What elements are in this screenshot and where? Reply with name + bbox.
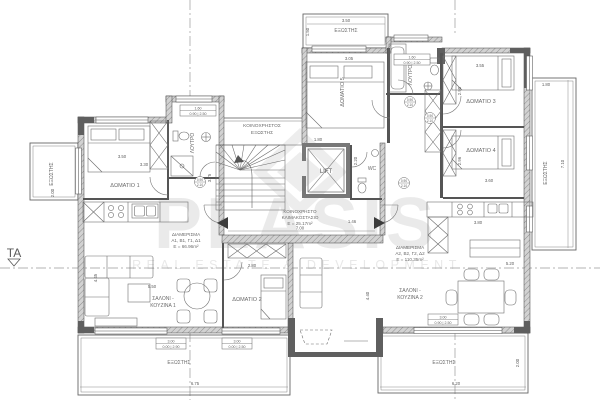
dim-living2-w: 5.20: [506, 261, 515, 266]
dim-right-w: 1.80: [542, 82, 551, 87]
dim-room4-w: 3.60: [485, 178, 494, 183]
svg-text:2.10: 2.10: [407, 103, 413, 107]
svg-text:0.90 | 2.50: 0.90 | 2.50: [435, 321, 452, 325]
dim-box-bl-1: 3.00 0.00 | 2.90: [156, 338, 186, 349]
label-room3: ΔΩΜΑΤΙΟ 3: [466, 99, 495, 105]
floor-plan-drawing: PLASIS REAL ESTATE & DEVELOPMENT TA: [0, 0, 600, 400]
svg-text:2.10: 2.10: [197, 183, 203, 187]
dim-kitchen2-w: 3.80: [474, 220, 483, 225]
svg-text:0.00 | 2.90: 0.00 | 2.90: [163, 345, 180, 349]
dim-hall-w: 7.00: [296, 226, 305, 231]
dim-room1-w: 3.50: [118, 154, 127, 159]
floor-plan-sheet: PLASIS REAL ESTATE & DEVELOPMENT TA: [0, 0, 600, 400]
section-marker: TA: [7, 246, 21, 266]
label-wc: WC: [368, 166, 377, 172]
label-bath1: ΛΟΥΤΡΟ: [190, 133, 196, 154]
section-marker-label: TA: [7, 246, 21, 260]
label-room5: ΔΩΜΑΤΙΟ 5: [340, 77, 346, 106]
svg-text:0.90: 0.90: [401, 179, 407, 183]
label-stairwell-2: ΚΛΙΜΑΚΟΣΤΑΣΙΟ: [282, 215, 319, 220]
svg-text:1.60: 1.60: [409, 56, 416, 60]
label-balcony-top: ΕΞΩΣΤΗΣ: [334, 28, 357, 34]
label-room1: ΔΩΜΑΤΙΟ 1: [110, 183, 139, 189]
label-apartment1-2: Α1, Β1, Γ1, Δ1: [171, 238, 201, 243]
svg-text:3.00: 3.00: [440, 316, 447, 320]
label-apartment1-1: ΔΙΑΜΕΡΙΣΜΑ: [172, 232, 201, 237]
label-apartment1-3: Ε = 66.96m²: [173, 244, 199, 249]
label-apartment2-2: Α2, Β2, Γ2, Δ2: [395, 251, 425, 256]
svg-text:0.90: 0.90: [407, 98, 413, 102]
dim-stair-h: 3.75: [207, 173, 212, 182]
svg-text:0.90 | 2.50: 0.90 | 2.50: [190, 112, 207, 116]
dim-room4-h: 2.96: [457, 156, 462, 165]
dim-box-bath2: 1.60 0.90 | 2.50: [394, 54, 430, 65]
lift-label: LIFT: [320, 169, 333, 175]
lightwell-planter: [300, 330, 368, 344]
svg-text:0.90 | 2.50: 0.90 | 2.50: [404, 61, 421, 65]
label-room4: ΔΩΜΑΤΙΟ 4: [466, 148, 495, 154]
dim-lift-w: 1.80: [314, 137, 323, 142]
balcony-right: [532, 78, 576, 250]
label-stairwell-1: ΚΟΙΝΟΧΡΗΣΤΟ: [283, 209, 317, 214]
dim-right-h: 7.10: [560, 159, 565, 168]
dim-br-w: 6.20: [452, 381, 461, 386]
dim-wc-h: 2.20: [353, 156, 358, 165]
bed-room3: [452, 56, 514, 90]
dim-bl-h: 2.00: [0, 0, 5, 1]
dim-box-br: 3.00 0.90 | 2.50: [428, 314, 458, 325]
svg-text:0.90: 0.90: [197, 178, 203, 182]
label-balcony-bottom-left: ΕΞΩΣΤΗΣ: [167, 360, 190, 366]
svg-text:0.90: 0.90: [427, 114, 433, 118]
label-balcony-right: ΕΞΩΣΤΗΣ: [543, 161, 549, 184]
dining-table-living1: [177, 279, 217, 323]
label-living2-2: ΚΟΥΖΙΝΑ 2: [397, 295, 423, 301]
dim-room5-w: 3.05: [345, 56, 354, 61]
label-bath2: ΛΟΥΤΡΟ: [408, 65, 414, 86]
kitchen2-counter: [427, 202, 533, 257]
label-apartment2-1: ΔΙΑΜΕΡΙΣΜΑ: [396, 245, 425, 250]
label-shared-balcony-2: ΕΞΩΣΤΗΣ: [251, 130, 273, 136]
dim-br-h: 2.00: [515, 358, 520, 367]
svg-text:2.10: 2.10: [427, 119, 433, 123]
dim-living1-w: 5.50: [148, 284, 157, 289]
label-balcony-bottom-right: ΕΞΩΣΤΗΣ: [432, 360, 455, 366]
door-tag-2: 0.90 2.10: [405, 97, 416, 108]
bathroom2-fixtures: [389, 44, 439, 92]
svg-text:3.00: 3.00: [168, 340, 175, 344]
label-living1-1: ΣΑΛΟΝΙ -: [152, 296, 174, 302]
dim-room2-w: 2.80: [248, 263, 257, 268]
dim-top-h: 1.50: [305, 27, 310, 36]
dim-living1-h: 4.45: [93, 273, 98, 282]
svg-text:3.00: 3.00: [234, 340, 241, 344]
dim-living2-h: 4.40: [365, 291, 370, 300]
label-balcony-left: ΕΞΩΣΤΗΣ: [49, 162, 55, 185]
label-apartment2-3: Ε = 110.35m²: [396, 257, 424, 262]
dim-box-bath1: 1.60 0.90 | 2.50: [180, 105, 216, 116]
door-tag-1: 0.90 2.10: [195, 177, 206, 188]
dim-room3-w: 3.55: [476, 63, 485, 68]
label-living1-2: ΚΟΥΖΙΝΑ 1: [150, 303, 176, 309]
dim-entry-w: 1.46: [348, 219, 357, 224]
dim-bl-w: 6.75: [191, 381, 200, 386]
dim-left-h: 2.00: [50, 188, 55, 197]
section-marker-triangle-icon: [8, 259, 20, 266]
svg-text:2.10: 2.10: [401, 184, 407, 188]
dim-box-bl-2: 3.00 0.00 | 2.50: [222, 338, 252, 349]
svg-text:0.00 | 2.50: 0.00 | 2.50: [229, 345, 246, 349]
door-tag-4: 0.90 2.10: [399, 178, 410, 189]
label-shared-balcony-1: ΚΟΙΝΟΧΡΗΣΤΟΣ: [243, 123, 281, 129]
dim-room1-h: 3.30: [140, 162, 149, 167]
label-room2: ΔΩΜΑΤΙΟ 2: [232, 297, 261, 303]
label-living2-1: ΣΑΛΟΝΙ -: [399, 288, 421, 294]
svg-text:1.60: 1.60: [195, 107, 202, 111]
door-tag-3: 0.90 2.10: [425, 113, 436, 124]
bed-room2: [261, 275, 286, 319]
dim-top-w: 3.50: [342, 18, 351, 23]
wardrobe-room1: [150, 121, 168, 169]
dim-room3-h: 2.90: [457, 86, 462, 95]
